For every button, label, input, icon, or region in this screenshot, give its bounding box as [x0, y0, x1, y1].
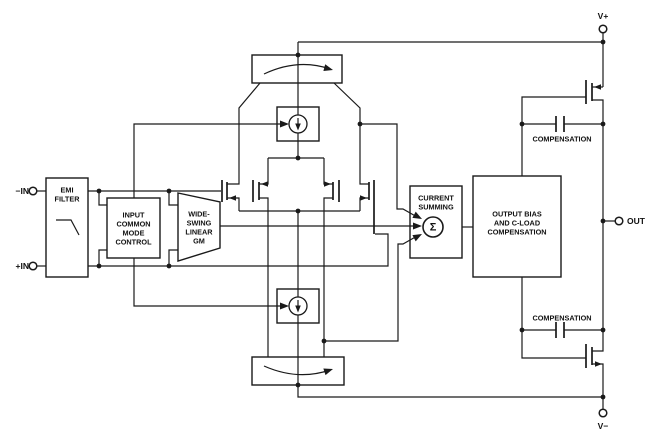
icm-to-bottom-source: [134, 258, 281, 306]
compensation-bottom-label: COMPENSATION: [532, 314, 591, 323]
arrowheads: [280, 121, 424, 310]
tap-gm-bottom: [169, 250, 178, 266]
output-bias-label-2: AND C-LOAD: [494, 219, 540, 228]
inner-left-mosfet-icon: [253, 180, 268, 202]
emi-label-1: EMI: [61, 186, 74, 195]
outer-left-source-lead: [227, 198, 239, 211]
in-neg-terminal: [29, 187, 37, 195]
inner-left-bottom-lead: [259, 198, 268, 357]
nmos-source-lead: [592, 364, 603, 397]
diagram-canvas: EMI FILTER INPUT COMMON MODE CONTROL WID…: [0, 0, 650, 432]
summing-label-1: CURRENT: [418, 194, 454, 203]
inner-left-top-lead: [259, 158, 268, 184]
icm-label-2: COMMON: [116, 220, 150, 229]
in-pos-terminal: [29, 262, 37, 270]
top-current-source-icon: [289, 115, 307, 133]
capacitor-bottom-icon: [556, 322, 564, 338]
capacitor-top-icon: [556, 116, 564, 132]
pmos-source-lead: [592, 100, 603, 124]
gm-label-2: SWING: [187, 219, 212, 228]
gm-label-4: GM: [193, 237, 205, 246]
icm-label-4: CONTROL: [115, 238, 152, 247]
inner-right-mosfet-icon: [324, 180, 339, 202]
compensation-top-label: COMPENSATION: [532, 135, 591, 144]
vminus-terminal: [599, 409, 607, 417]
icm-label-3: MODE: [123, 229, 145, 238]
summing-bottom-branch: [324, 238, 415, 342]
summing-label-2: SUMMING: [418, 203, 454, 212]
in-neg-label: −IN: [16, 186, 29, 196]
summing-top-branch: [360, 124, 415, 216]
bottom-current-source-icon: [289, 297, 307, 315]
mirror-diag-right: [334, 83, 369, 184]
out-terminal: [615, 217, 623, 225]
sigma-symbol: Σ: [430, 222, 437, 234]
vminus-label: V−: [598, 421, 609, 431]
in-pos-label: +IN: [16, 261, 29, 271]
inner-right-top-lead: [324, 158, 333, 184]
out-label: OUT: [627, 216, 646, 226]
output-bias-label-3: COMPENSATION: [487, 228, 546, 237]
tap-icm-top: [99, 191, 107, 205]
icm-label-1: INPUT: [123, 211, 145, 220]
gm-label-3: LINEAR: [185, 228, 213, 237]
vplus-label: V+: [598, 11, 609, 21]
outer-left-mosfet-icon: [222, 180, 236, 202]
inner-right-bottom-lead: [324, 198, 333, 357]
mirror-diag-left: [227, 83, 260, 184]
tap-icm-bottom: [99, 250, 107, 266]
gm-label-1: WIDE-: [188, 210, 210, 219]
nmos-drain-lead: [592, 330, 603, 351]
output-bias-label-1: OUTPUT BIAS: [492, 210, 542, 219]
vminus-rail: [298, 385, 603, 397]
tap-gm-top: [169, 191, 178, 205]
block-labels: EMI FILTER INPUT COMMON MODE CONTROL WID…: [55, 135, 592, 323]
block-diagram: EMI FILTER INPUT COMMON MODE CONTROL WID…: [0, 0, 650, 432]
sigma-node: Σ: [423, 217, 443, 237]
emi-label-2: FILTER: [55, 195, 81, 204]
vplus-terminal: [599, 25, 607, 33]
